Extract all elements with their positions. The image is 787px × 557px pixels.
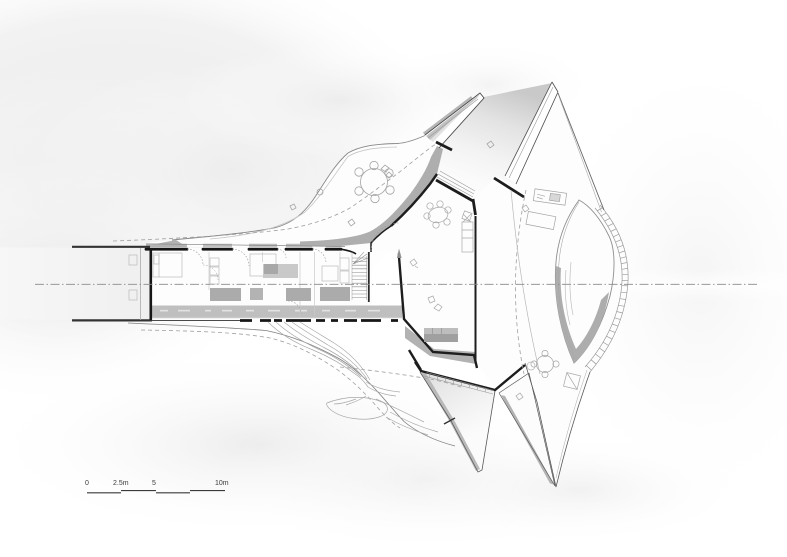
svg-text:2.5m: 2.5m — [113, 480, 129, 487]
svg-text:10m: 10m — [215, 480, 229, 487]
svg-text:0: 0 — [85, 480, 89, 487]
svg-text:5: 5 — [152, 480, 156, 487]
